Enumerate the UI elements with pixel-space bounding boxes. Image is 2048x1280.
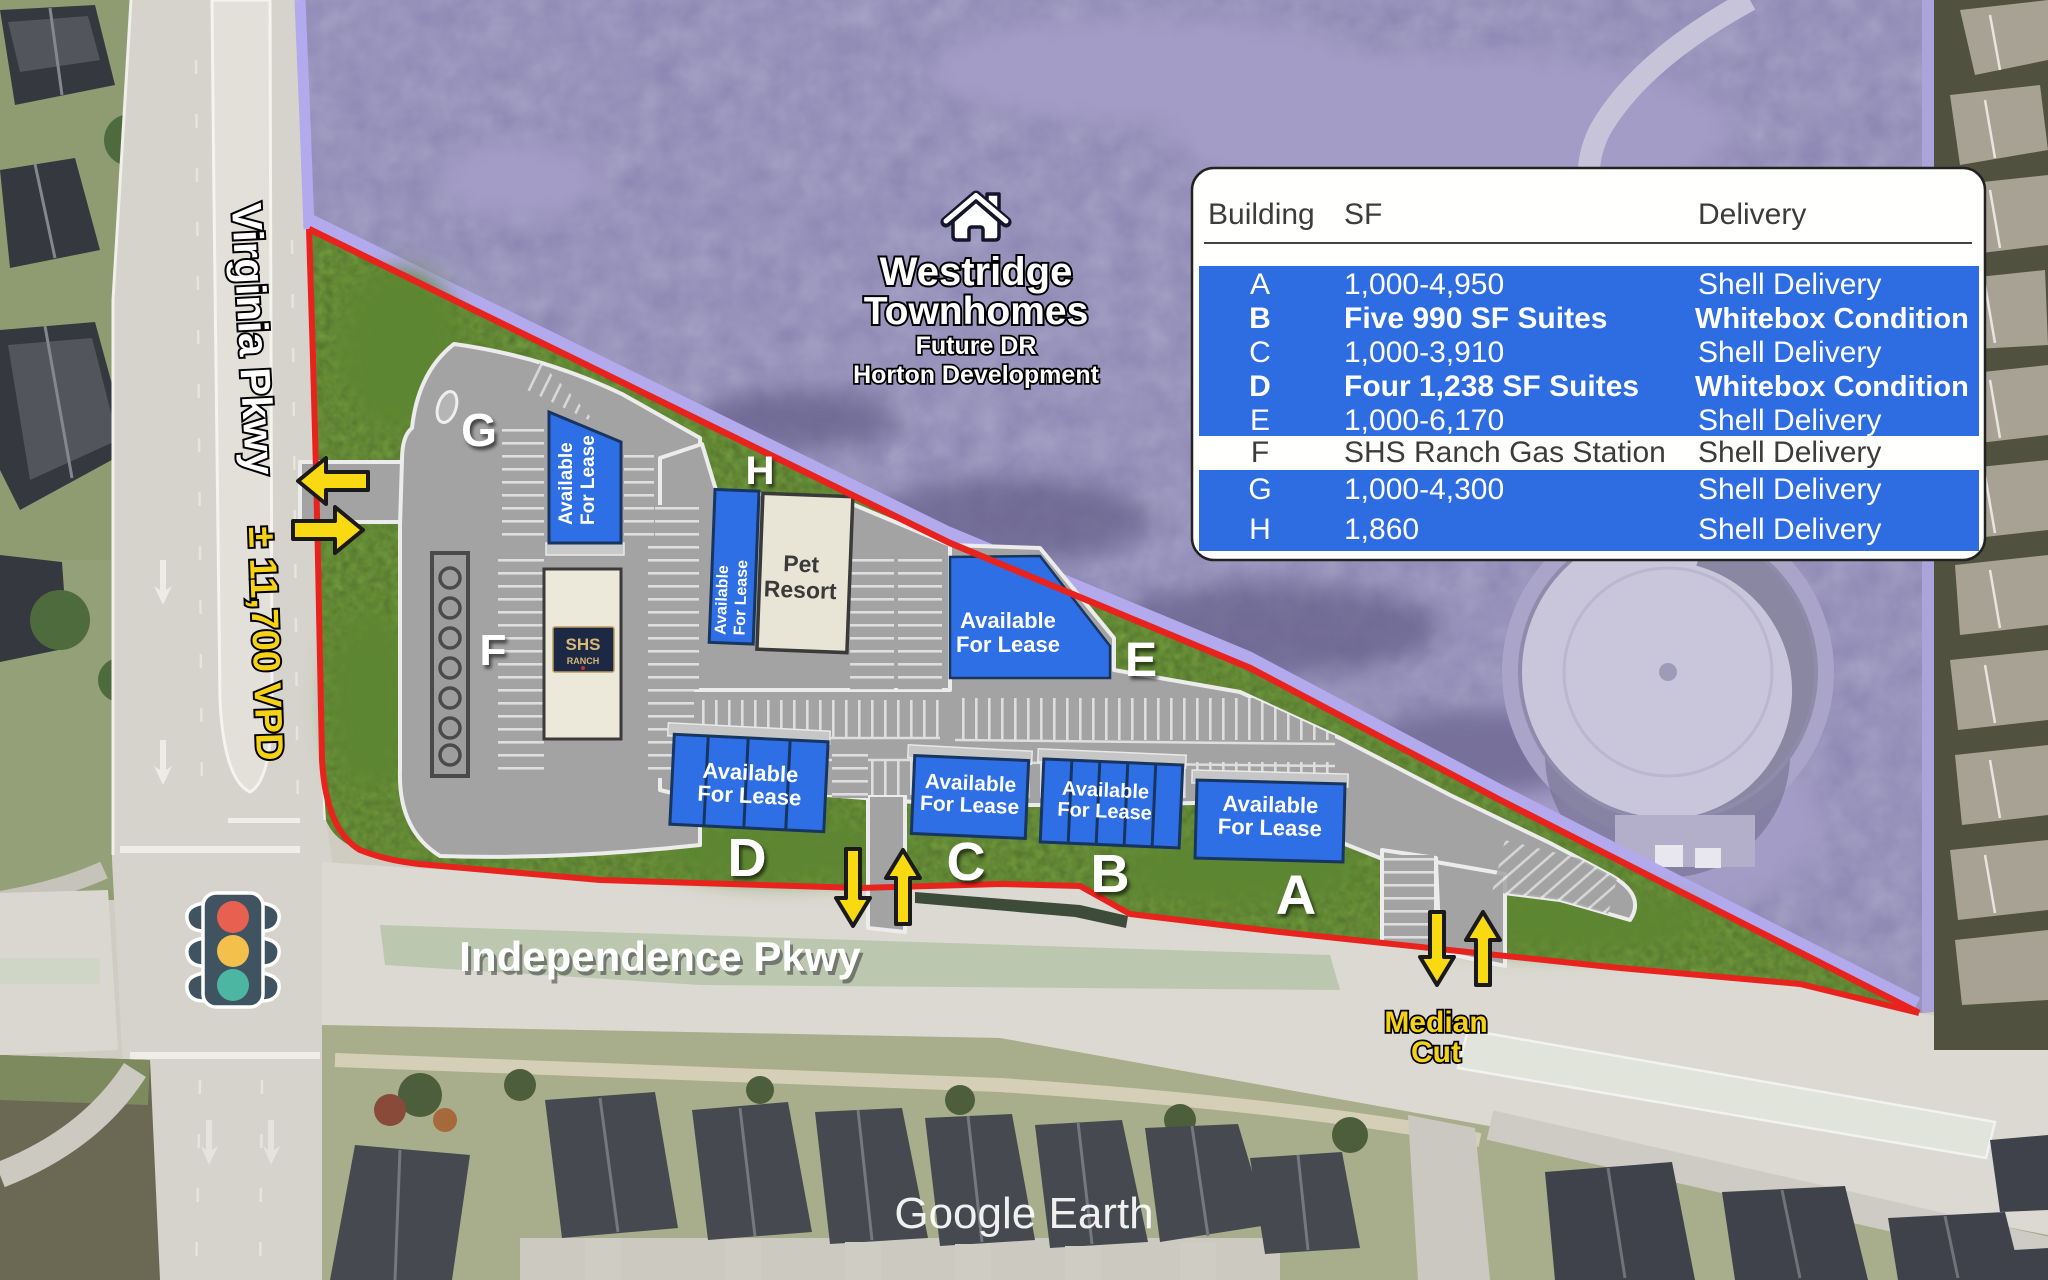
svg-text:Shell Delivery: Shell Delivery (1698, 268, 1881, 301)
svg-text:Westridge: Westridge (880, 250, 1073, 294)
svg-text:Townhomes: Townhomes (864, 290, 1089, 333)
svg-text:Building: Building (1208, 198, 1315, 231)
svg-text:D: D (728, 828, 767, 888)
svg-text:Shell Delivery: Shell Delivery (1698, 513, 1881, 546)
svg-text:1,860: 1,860 (1344, 513, 1419, 546)
svg-text:Available: Available (712, 565, 732, 635)
svg-text:G: G (461, 404, 497, 456)
svg-text:1,000-4,300: 1,000-4,300 (1344, 473, 1504, 506)
svg-text:For Lease: For Lease (1218, 814, 1323, 842)
svg-text:For Lease: For Lease (578, 435, 599, 525)
svg-text:SF: SF (1344, 198, 1382, 231)
svg-text:Five 990 SF Suites: Five 990 SF Suites (1344, 302, 1607, 335)
svg-text:Whitebox Condition: Whitebox Condition (1695, 303, 1969, 335)
svg-text:Shell Delivery: Shell Delivery (1698, 473, 1881, 506)
svg-text:Shell Delivery: Shell Delivery (1698, 336, 1881, 369)
svg-text:Resort: Resort (763, 575, 837, 604)
svg-text:Google Earth: Google Earth (894, 1189, 1153, 1238)
svg-text:C: C (947, 832, 986, 892)
svg-text:C: C (1249, 336, 1271, 369)
svg-text:E: E (1125, 634, 1157, 687)
svg-text:SHS Ranch Gas Station: SHS Ranch Gas Station (1344, 436, 1666, 469)
svg-text:G: G (1248, 473, 1271, 506)
svg-text:F: F (480, 626, 507, 675)
svg-text:H: H (746, 449, 775, 493)
svg-text:SHS: SHS (566, 635, 601, 654)
svg-text:Available: Available (960, 608, 1056, 633)
svg-text:A: A (1250, 268, 1270, 301)
svg-text:F: F (1251, 436, 1269, 469)
svg-text:1,000-6,170: 1,000-6,170 (1344, 404, 1504, 437)
svg-text:Cut: Cut (1411, 1036, 1461, 1069)
svg-text:Whitebox Condition: Whitebox Condition (1695, 371, 1969, 403)
svg-text:For Lease: For Lease (697, 781, 802, 811)
svg-text:For Lease: For Lease (731, 560, 751, 636)
svg-text:D: D (1249, 370, 1271, 403)
svg-text:B: B (1249, 302, 1271, 335)
svg-text:Delivery: Delivery (1698, 198, 1806, 231)
svg-text:Four 1,238 SF Suites: Four 1,238 SF Suites (1344, 370, 1639, 403)
svg-text:Pet: Pet (783, 550, 820, 577)
svg-text:H: H (1249, 513, 1271, 546)
svg-text:Future DR: Future DR (916, 332, 1037, 360)
svg-text:1,000-4,950: 1,000-4,950 (1344, 268, 1504, 301)
svg-text:Median: Median (1384, 1006, 1487, 1039)
svg-text:Shell Delivery: Shell Delivery (1698, 404, 1881, 437)
svg-text:For Lease: For Lease (920, 792, 1020, 819)
svg-text:Independence Pkwy: Independence Pkwy (459, 933, 861, 980)
svg-text:1,000-3,910: 1,000-3,910 (1344, 336, 1504, 369)
svg-text:A: A (1276, 863, 1316, 926)
svg-text:For Lease: For Lease (1057, 799, 1152, 825)
svg-text:Available: Available (556, 442, 577, 525)
svg-text:For Lease: For Lease (956, 632, 1060, 657)
svg-text:± 11,700 VPD: ± 11,700 VPD (240, 526, 290, 762)
svg-text:Horton Development: Horton Development (853, 361, 1100, 389)
svg-text:B: B (1091, 844, 1130, 904)
svg-text:Shell Delivery: Shell Delivery (1698, 436, 1881, 469)
svg-text:E: E (1250, 404, 1270, 437)
svg-text:RANCH: RANCH (567, 656, 600, 666)
